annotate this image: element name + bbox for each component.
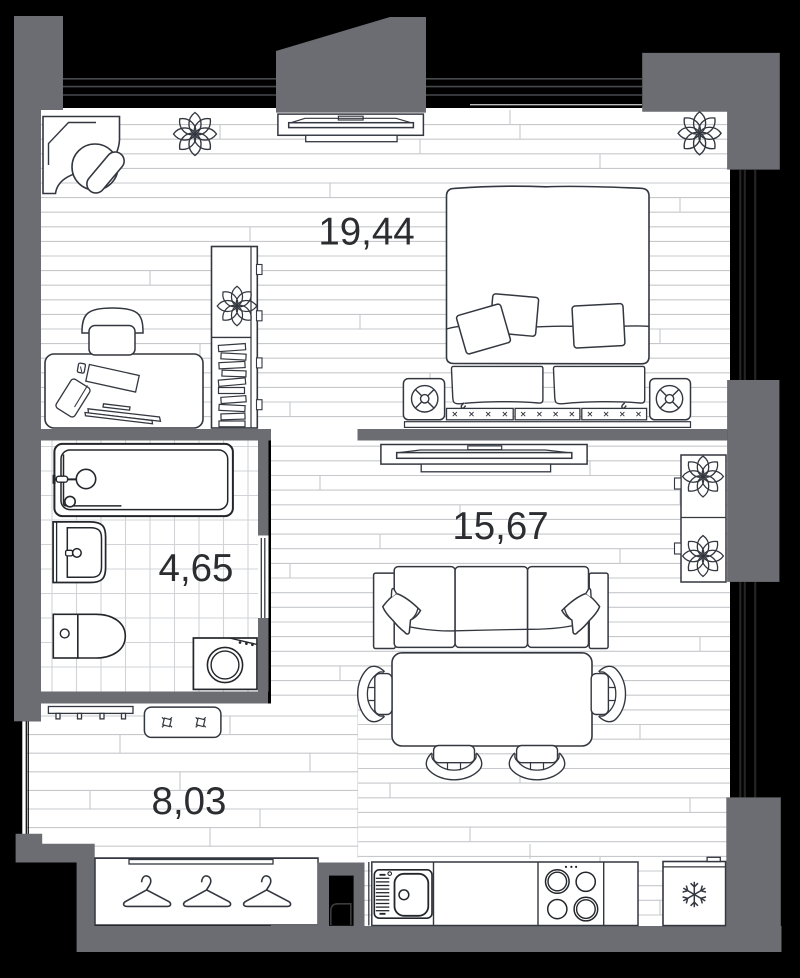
svg-text:8,03: 8,03 — [152, 780, 227, 823]
svg-text:4,65: 4,65 — [159, 547, 234, 590]
svg-text:19,44: 19,44 — [318, 211, 414, 254]
svg-text:15,67: 15,67 — [452, 505, 548, 548]
